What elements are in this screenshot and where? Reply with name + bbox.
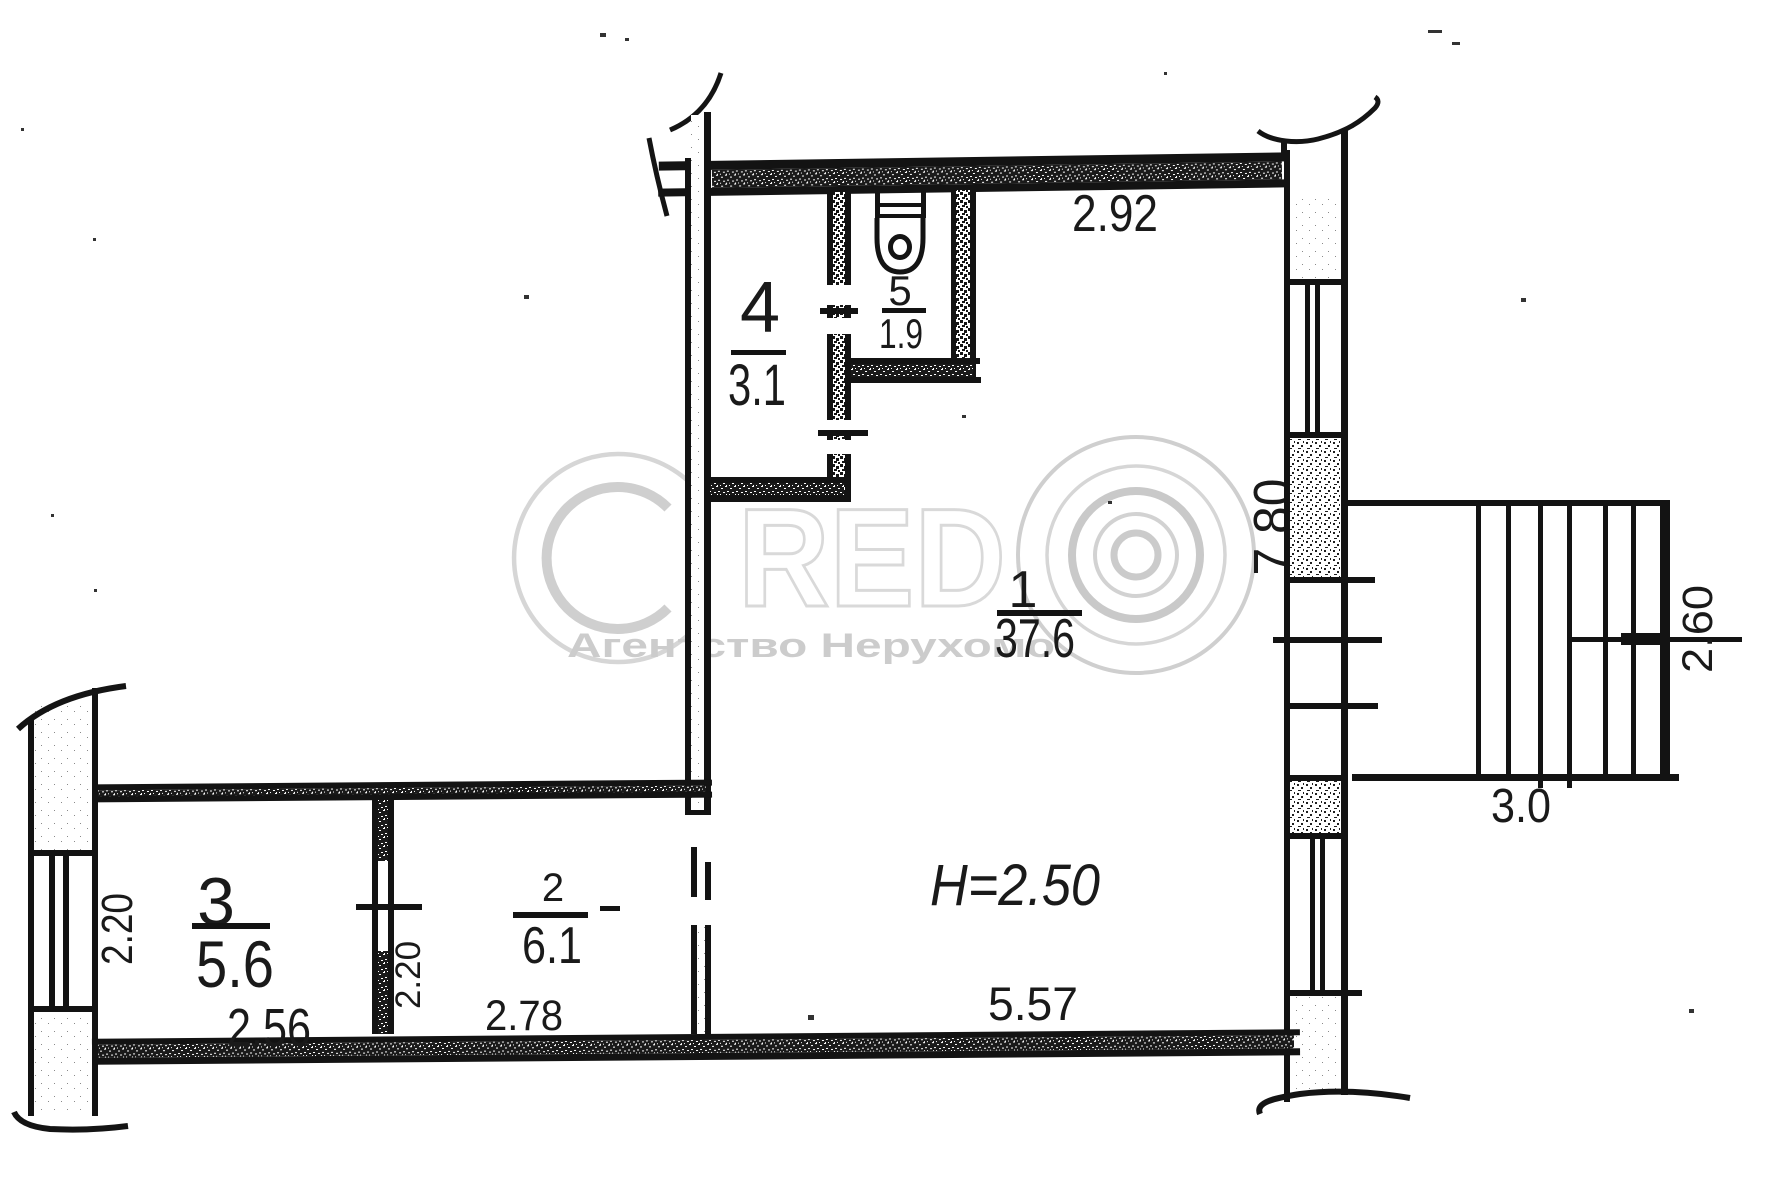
svg-text:2.20: 2.20 — [389, 941, 428, 1009]
svg-text:2.92: 2.92 — [1072, 185, 1158, 243]
svg-text:RED: RED — [738, 479, 1006, 636]
svg-text:2.60: 2.60 — [1674, 585, 1722, 673]
svg-text:2.20: 2.20 — [93, 893, 142, 965]
svg-text:H=2.50: H=2.50 — [930, 853, 1100, 918]
svg-text:2.78: 2.78 — [485, 992, 563, 1040]
svg-text:5.6: 5.6 — [196, 927, 274, 1001]
svg-text:37.6: 37.6 — [995, 607, 1075, 669]
svg-text:5: 5 — [888, 267, 911, 314]
svg-text:3.0: 3.0 — [1491, 780, 1551, 833]
svg-text:2.56: 2.56 — [227, 998, 311, 1058]
svg-text:5.57: 5.57 — [988, 977, 1078, 1030]
svg-text:3.1: 3.1 — [728, 353, 786, 418]
svg-text:Агентство Нерухомо: Агентство Нерухомо — [567, 627, 1055, 665]
svg-text:6.1: 6.1 — [522, 917, 582, 975]
svg-text:1.9: 1.9 — [879, 310, 923, 357]
svg-text:2: 2 — [542, 866, 564, 910]
svg-text:4: 4 — [740, 268, 780, 348]
